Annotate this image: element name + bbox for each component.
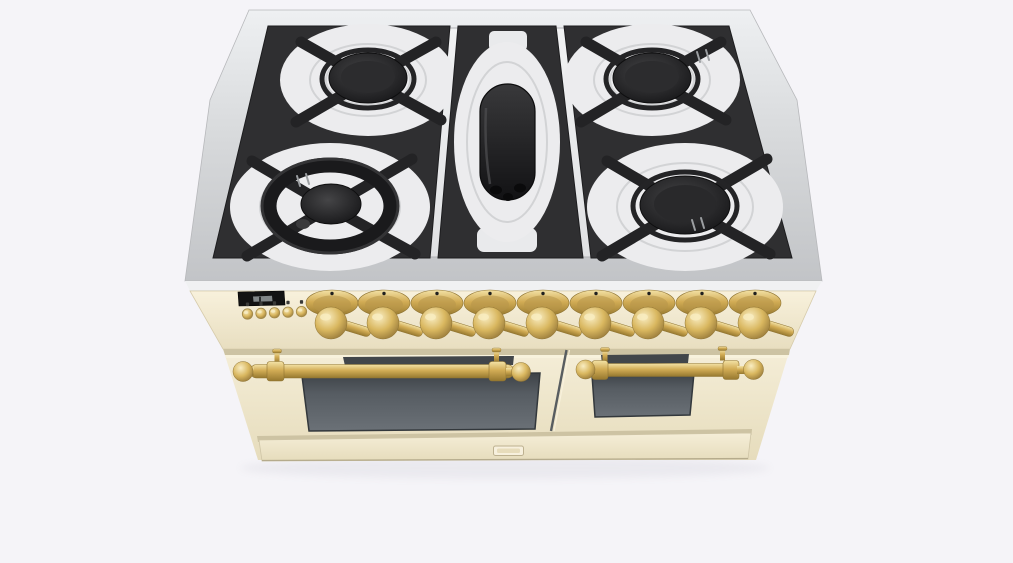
range-render — [0, 0, 1013, 563]
brand-badge-inner — [497, 449, 520, 454]
handle-finial — [744, 360, 764, 380]
burner-right-rear — [564, 24, 740, 136]
right-door-vent — [601, 354, 689, 364]
oven-front — [223, 347, 790, 462]
burner-left-rear — [280, 24, 456, 136]
product-render-stage — [0, 0, 1013, 563]
burner-right-front — [587, 143, 783, 271]
right-oven-window — [592, 373, 694, 417]
burner-left-front-dual-ring — [230, 143, 430, 271]
handle-bar — [597, 364, 735, 377]
handle-finial — [233, 362, 253, 382]
panel-door-groove — [223, 349, 790, 355]
burner-center-oval — [480, 84, 535, 201]
display-digit-gap — [259, 297, 261, 302]
cooktop-front-lip — [185, 281, 822, 291]
left-oven-window — [302, 373, 540, 431]
handle-finial — [576, 360, 595, 379]
handle-bar — [250, 365, 514, 379]
control-panel — [190, 290, 816, 349]
cooktop — [185, 10, 822, 291]
handle-finial — [512, 363, 531, 382]
display-segment — [253, 296, 273, 302]
